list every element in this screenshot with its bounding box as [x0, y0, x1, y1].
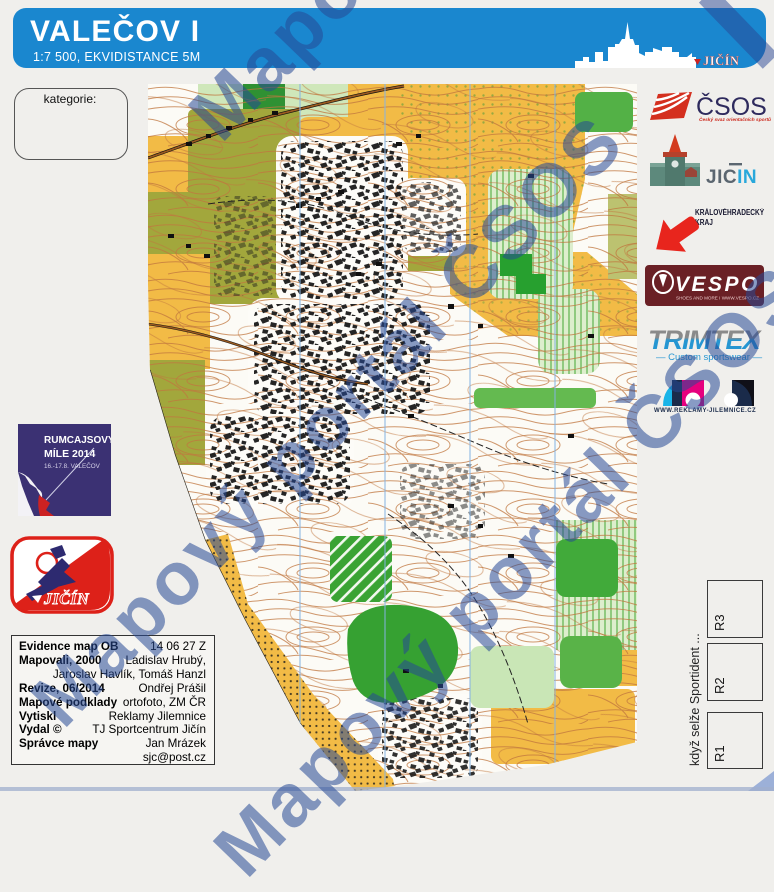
svg-text:MÍLE 2014: MÍLE 2014	[44, 447, 96, 460]
svg-text:RUMCAJSOVY: RUMCAJSOVY	[44, 435, 111, 446]
svg-text:JIČÍN: JIČÍN	[703, 54, 740, 68]
svg-text:16.-17.8. VALEČOV: 16.-17.8. VALEČOV	[44, 461, 101, 470]
svg-text:ČSOS: ČSOS	[696, 92, 767, 121]
svg-text:JICIN: JICIN	[706, 167, 757, 188]
svg-text:JIČÍN: JIČÍN	[43, 589, 90, 608]
